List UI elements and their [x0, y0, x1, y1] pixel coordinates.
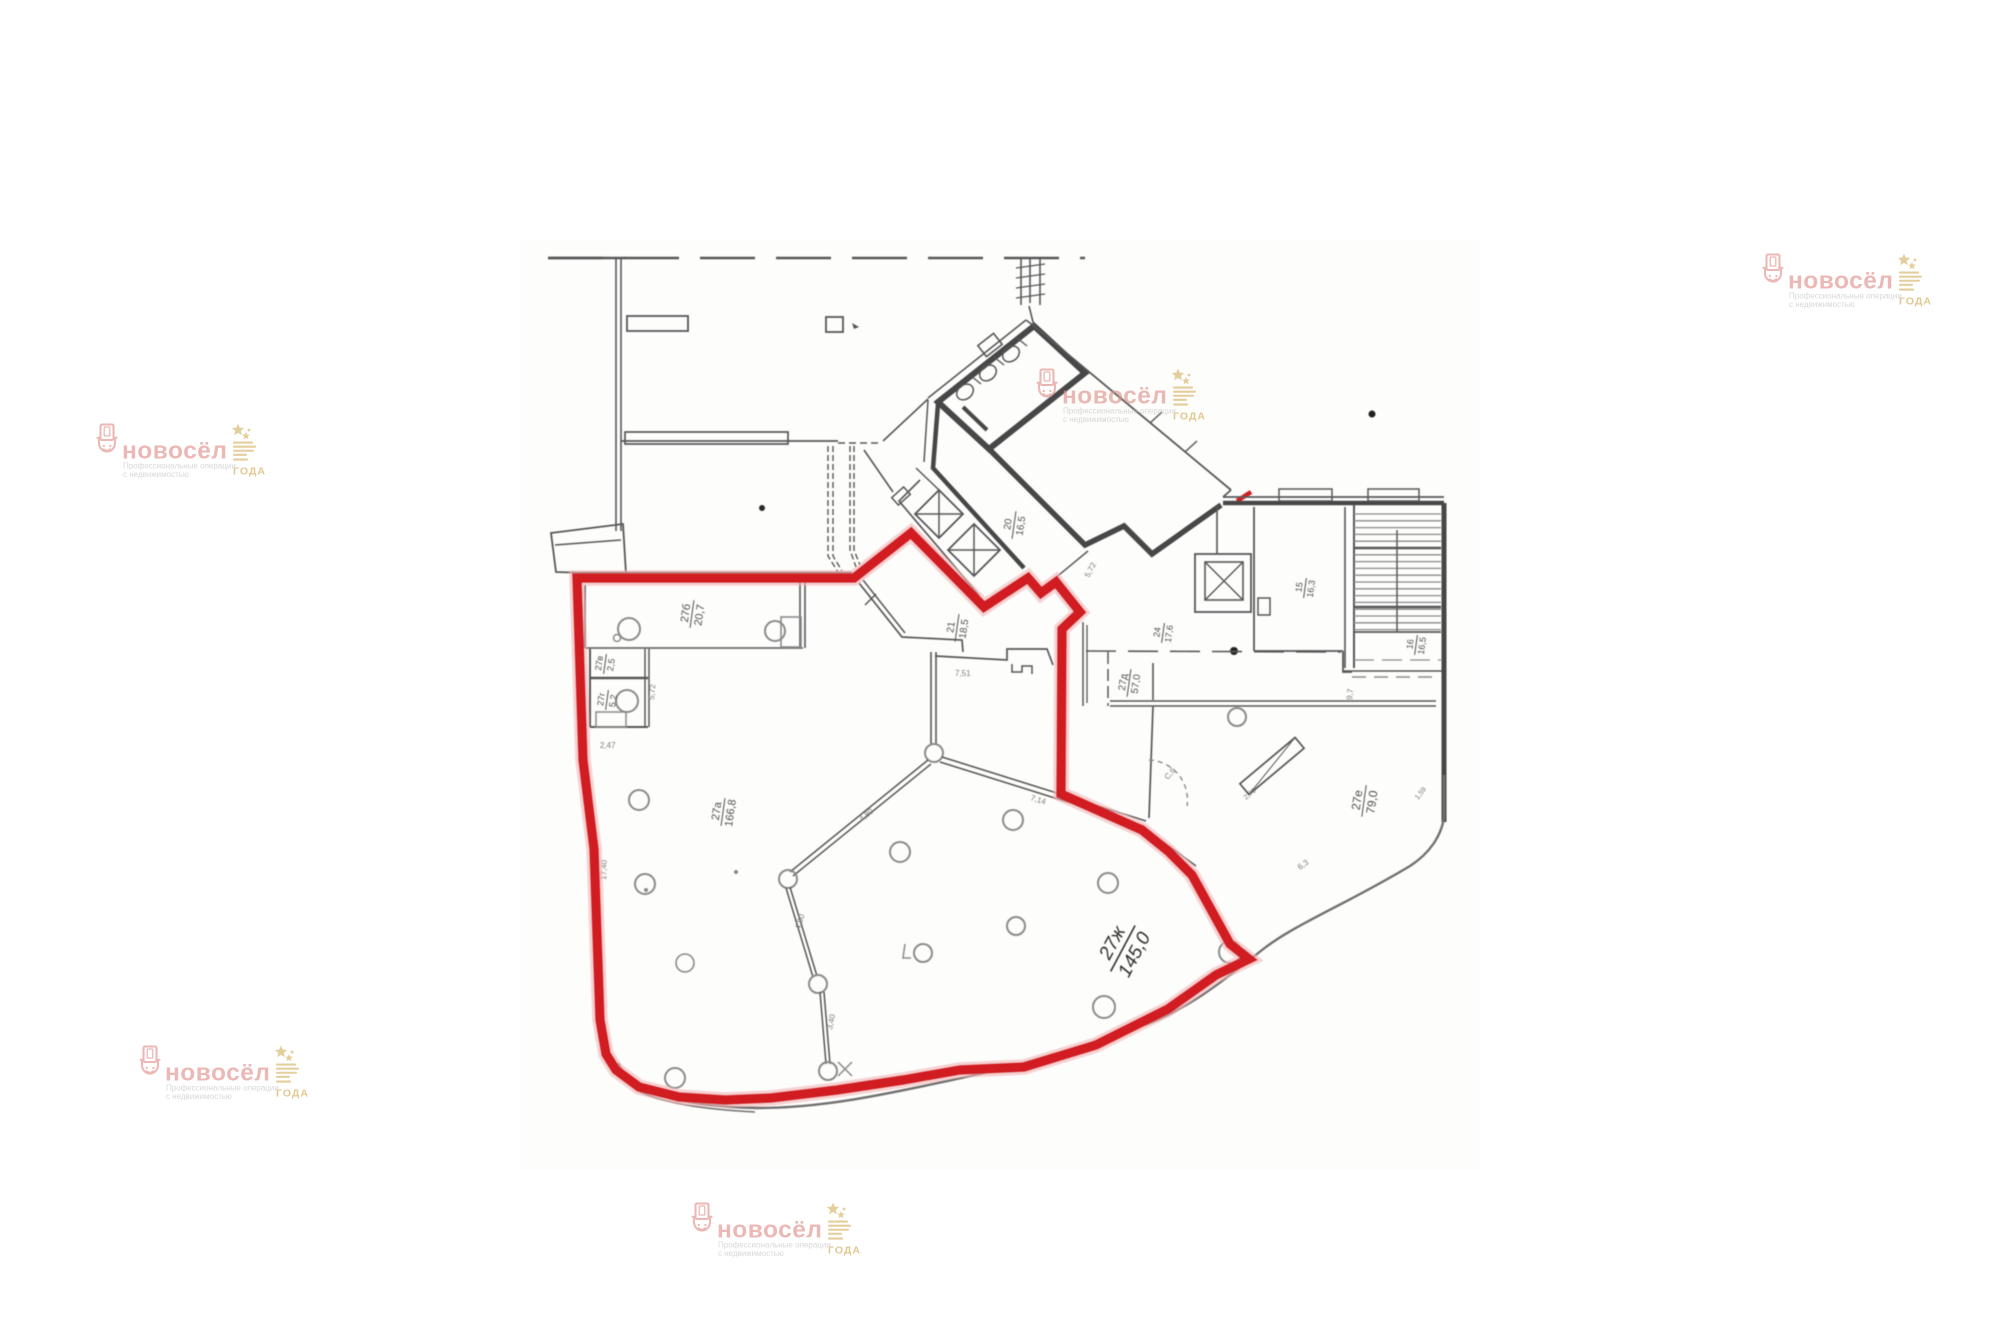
svg-text:7,51: 7,51: [955, 669, 971, 678]
svg-text:21: 21: [945, 621, 958, 634]
svg-text:5,2: 5,2: [607, 694, 619, 708]
svg-text:27г: 27г: [595, 691, 607, 706]
svg-text:9,7: 9,7: [1345, 688, 1355, 700]
svg-text:2,5: 2,5: [605, 658, 617, 672]
svg-text:15: 15: [1293, 582, 1304, 593]
svg-text:2,47: 2,47: [600, 741, 616, 750]
svg-text:20: 20: [1002, 518, 1015, 531]
svg-text:24: 24: [1151, 627, 1162, 638]
svg-text:27в: 27в: [593, 655, 605, 671]
svg-text:16: 16: [1404, 639, 1415, 650]
svg-text:5,72: 5,72: [647, 683, 657, 700]
